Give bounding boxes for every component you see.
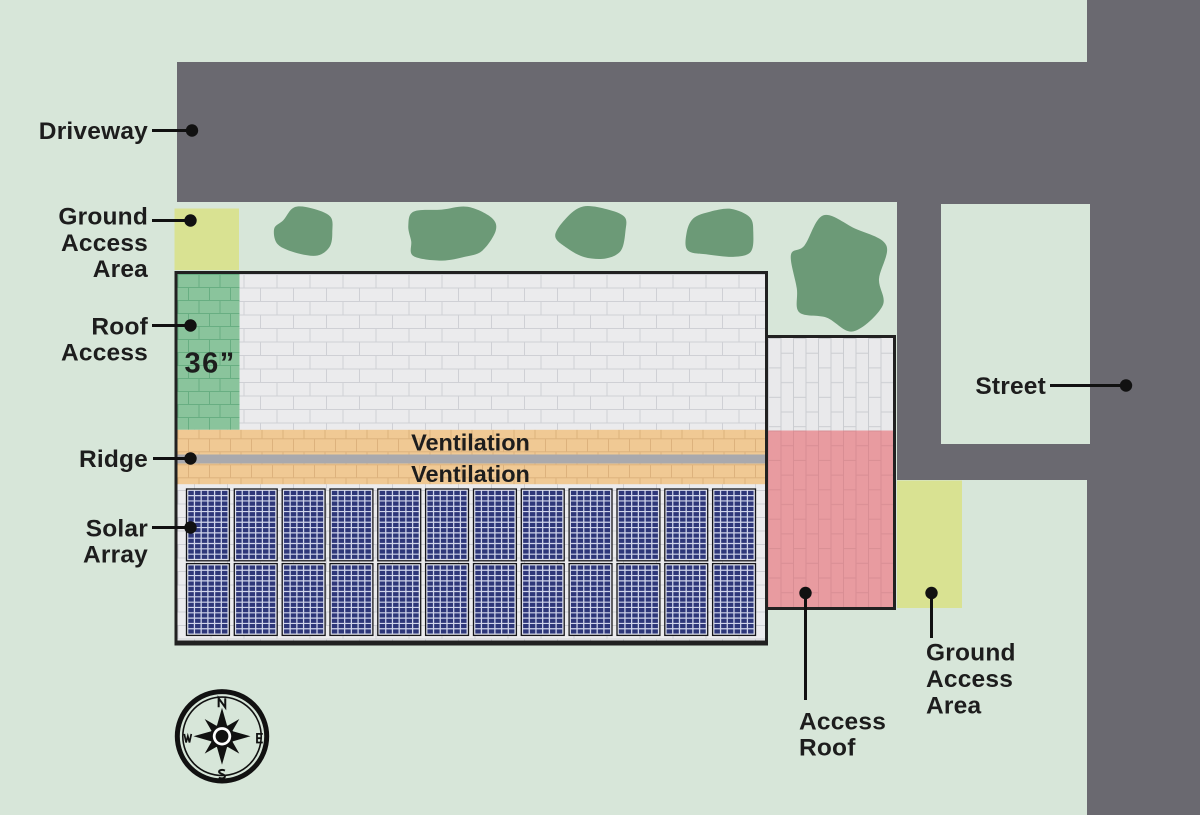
svg-text:Access: Access xyxy=(799,709,886,736)
svg-text:Driveway: Driveway xyxy=(39,118,148,145)
svg-text:Area: Area xyxy=(93,256,148,283)
svg-text:Array: Array xyxy=(83,542,148,569)
svg-text:Roof: Roof xyxy=(91,314,148,341)
svg-text:36”: 36” xyxy=(185,347,236,379)
svg-text:Access: Access xyxy=(61,340,148,367)
svg-text:Street: Street xyxy=(975,373,1046,400)
svg-text:Access: Access xyxy=(926,666,1013,693)
svg-text:Ridge: Ridge xyxy=(79,446,148,473)
svg-text:Solar: Solar xyxy=(86,516,149,543)
svg-text:Ground: Ground xyxy=(58,204,148,231)
svg-text:Ground: Ground xyxy=(926,640,1016,667)
svg-text:Area: Area xyxy=(926,693,981,720)
svg-text:Ventilation: Ventilation xyxy=(411,430,530,456)
svg-text:Ventilation: Ventilation xyxy=(411,461,530,487)
svg-text:Roof: Roof xyxy=(799,735,856,762)
svg-text:Access: Access xyxy=(61,230,148,257)
